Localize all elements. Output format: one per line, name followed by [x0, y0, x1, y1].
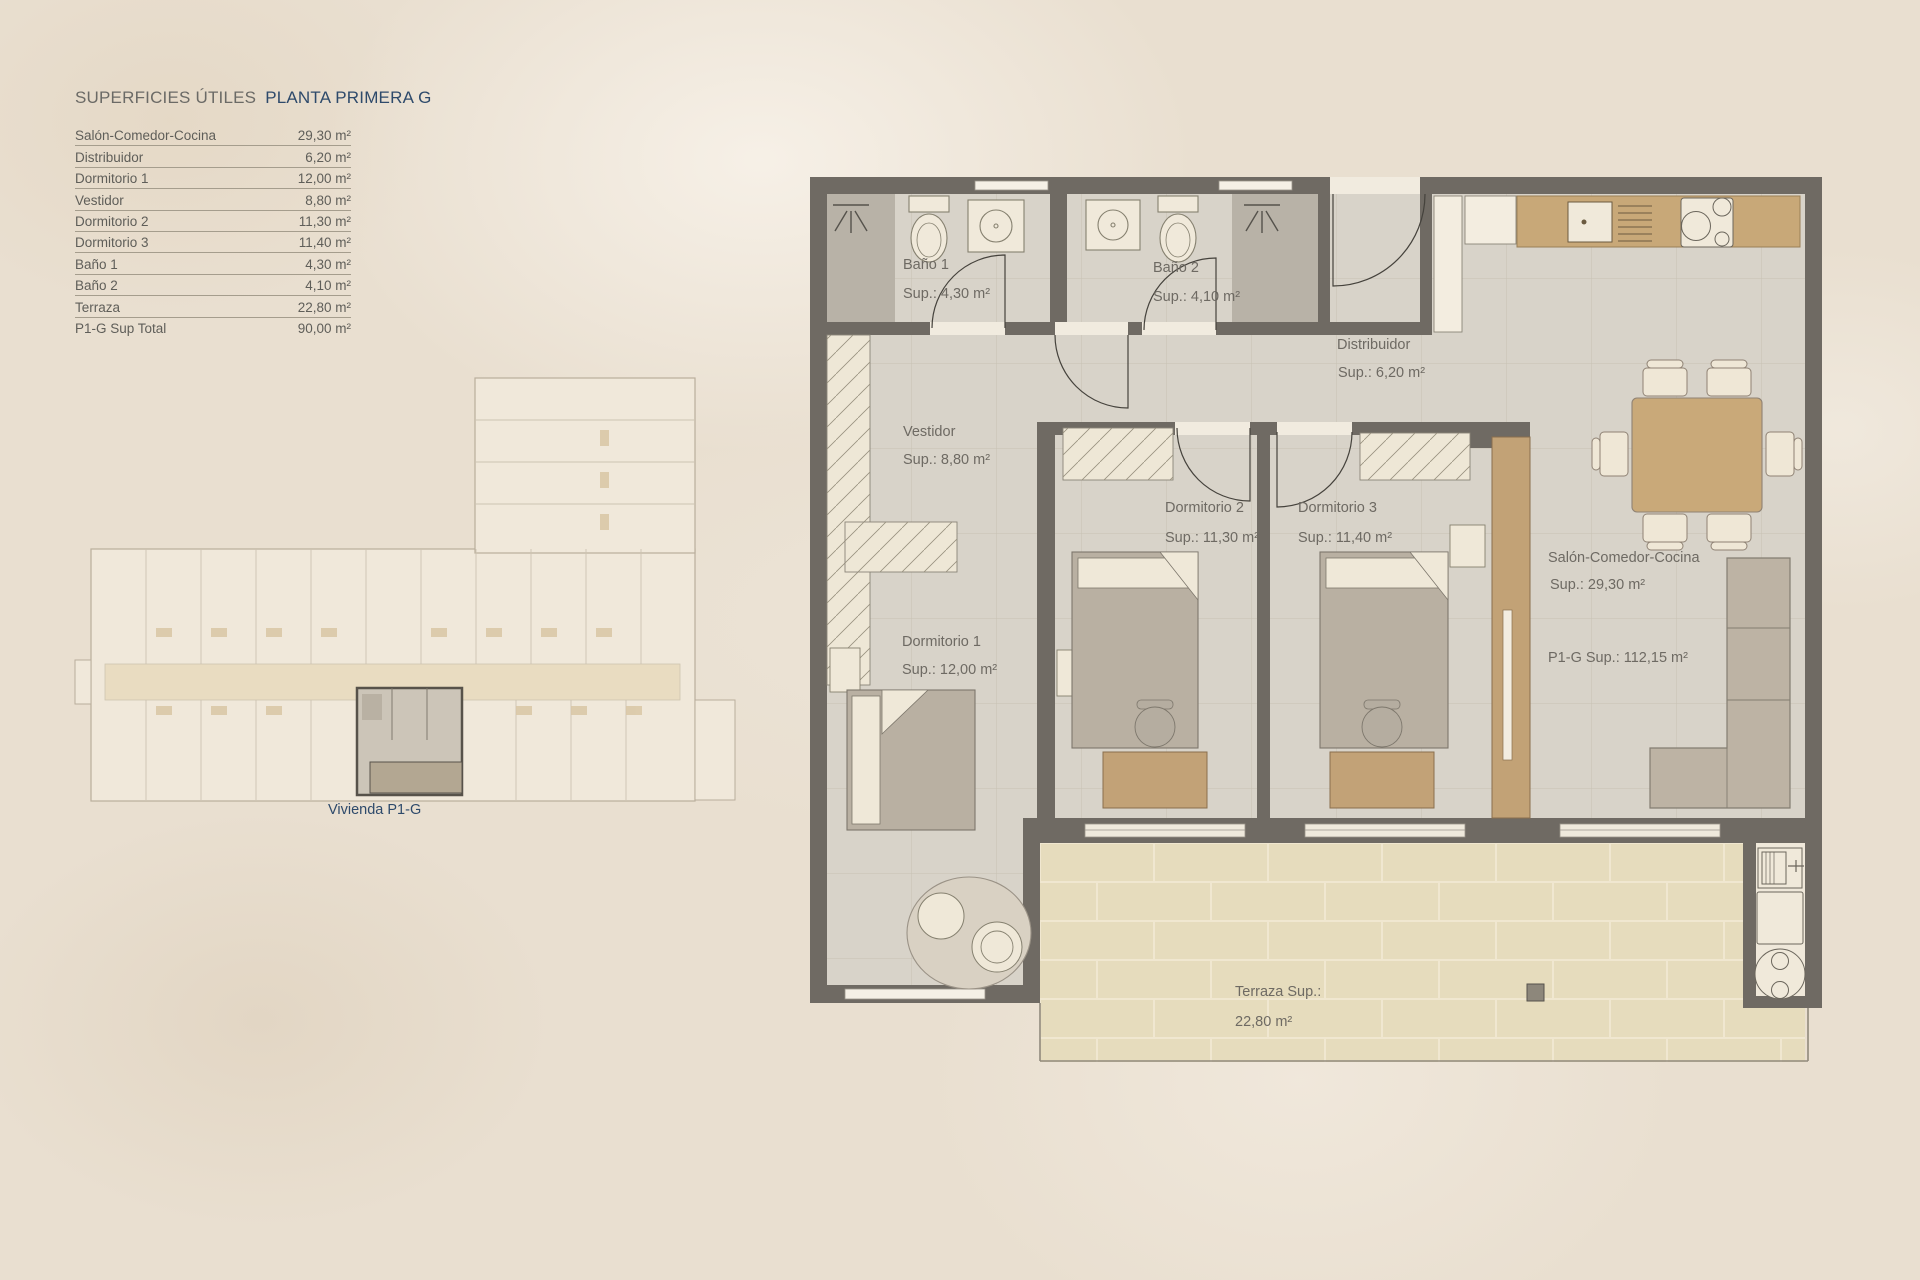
room-label-bano1: Baño 1	[903, 258, 949, 273]
wood-partition	[1492, 437, 1530, 818]
sitting-area	[907, 877, 1031, 989]
room-sup-distribuidor: Sup.: 6,20 m²	[1338, 366, 1425, 381]
row-label: Dormitorio 1	[75, 170, 149, 188]
row-label: Baño 2	[75, 277, 118, 295]
nightstand	[830, 648, 860, 692]
room-label-dorm2: Dormitorio 2	[1165, 501, 1244, 516]
armchair-icon	[918, 893, 964, 939]
overview-plan	[70, 370, 750, 810]
row-value: 8,80 m²	[305, 192, 351, 210]
legend-row: Dormitorio 112,00 m²	[75, 168, 351, 189]
room-label-dorm3: Dormitorio 3	[1298, 501, 1377, 516]
row-value: 4,10 m²	[305, 277, 351, 295]
desk-dorm3	[1330, 752, 1434, 808]
room-sup-bano1: Sup.: 4,30 m²	[903, 287, 990, 302]
row-label: Distribuidor	[75, 149, 143, 167]
row-value: 11,30 m²	[299, 213, 351, 231]
legend-row: P1-G Sup Total90,00 m²	[75, 318, 351, 338]
room-sup-vestidor: Sup.: 8,80 m²	[903, 453, 990, 468]
armchair-icon	[972, 922, 1022, 972]
entry-closet	[1434, 196, 1462, 332]
overview-building	[75, 378, 735, 801]
desk-chair-dorm2	[1135, 700, 1175, 747]
legend-row: Dormitorio 311,40 m²	[75, 232, 351, 253]
row-value: 29,30 m²	[298, 127, 351, 145]
row-value: 6,20 m²	[305, 149, 351, 167]
wardrobe-vestidor-2	[845, 522, 957, 572]
fridge-icon	[1465, 196, 1516, 244]
terrace-floor	[1040, 843, 1808, 1062]
room-label-terraza: Terraza Sup.:	[1235, 985, 1321, 1000]
row-value: 11,40 m²	[299, 234, 351, 252]
row-value: 22,80 m²	[298, 299, 351, 317]
desk-chair-dorm3	[1362, 700, 1402, 747]
room-label-vestidor: Vestidor	[903, 425, 955, 440]
legend-row: Baño 24,10 m²	[75, 275, 351, 296]
wardrobe-dorm3	[1360, 433, 1470, 480]
room-label-bano2: Baño 2	[1153, 261, 1199, 276]
room-label-total: P1-G Sup.: 112,15 m²	[1548, 651, 1688, 666]
sliding-doors-terrace	[1085, 824, 1720, 837]
wardrobe-dorm2	[1063, 428, 1173, 480]
row-label: Dormitorio 2	[75, 213, 149, 231]
kitchen-counter	[1517, 196, 1800, 247]
legend-row: Salón-Comedor-Cocina29,30 m²	[75, 125, 351, 146]
boiler-icon	[1755, 949, 1805, 999]
dining-table	[1632, 398, 1762, 512]
room-sup-dorm1: Sup.: 12,00 m²	[902, 663, 997, 678]
toilet-icon-bano1	[909, 196, 949, 262]
room-sup-terraza: 22,80 m²	[1235, 1015, 1292, 1030]
room-sup-bano2: Sup.: 4,10 m²	[1153, 290, 1240, 305]
sink-icon-bano2	[1086, 200, 1140, 250]
toilet-icon-bano2	[1158, 196, 1198, 262]
room-sup-salon: Sup.: 29,30 m²	[1550, 578, 1645, 593]
row-label: Baño 1	[75, 256, 118, 274]
sink-icon-bano1	[968, 200, 1024, 252]
row-value: 90,00 m²	[298, 320, 351, 338]
legend-table: Salón-Comedor-Cocina29,30 m² Distribuido…	[75, 125, 351, 338]
page: SUPERFICIES ÚTILESPLANTA PRIMERA G Salón…	[0, 0, 1920, 1280]
washer-icon	[1757, 892, 1803, 944]
overview-caption: Vivienda P1-G	[328, 802, 421, 818]
row-label: P1-G Sup Total	[75, 320, 166, 338]
overview-highlighted-unit	[357, 688, 462, 795]
hob-icon	[1681, 198, 1733, 247]
legend-title-left: SUPERFICIES ÚTILES	[75, 88, 256, 107]
row-label: Dormitorio 3	[75, 234, 149, 252]
utility-sink-icon	[1758, 848, 1804, 888]
room-label-dorm1: Dormitorio 1	[902, 635, 981, 650]
shower-bano2	[1232, 194, 1318, 322]
room-sup-dorm3: Sup.: 11,40 m²	[1298, 531, 1392, 546]
nightstand	[1450, 525, 1485, 567]
legend-row: Dormitorio 211,30 m²	[75, 211, 351, 232]
shower-bano1	[827, 194, 895, 322]
legend-row: Distribuidor6,20 m²	[75, 146, 351, 167]
room-label-distribuidor: Distribuidor	[1337, 338, 1410, 353]
row-label: Vestidor	[75, 192, 124, 210]
legend-title-right: PLANTA PRIMERA G	[265, 88, 431, 107]
row-value: 4,30 m²	[305, 256, 351, 274]
room-sup-dorm2: Sup.: 11,30 m²	[1165, 531, 1259, 546]
legend-row: Vestidor8,80 m²	[75, 189, 351, 210]
room-label-salon: Salón-Comedor-Cocina	[1548, 551, 1700, 566]
row-value: 12,00 m²	[298, 170, 351, 188]
legend-title: SUPERFICIES ÚTILESPLANTA PRIMERA G	[75, 88, 351, 108]
wardrobe-vestidor	[827, 335, 870, 685]
terrace-drain	[1527, 984, 1544, 1001]
legend-row: Baño 14,30 m²	[75, 253, 351, 274]
desk-dorm2	[1103, 752, 1207, 808]
bed-dorm1	[847, 690, 975, 830]
legend-panel: SUPERFICIES ÚTILESPLANTA PRIMERA G Salón…	[75, 88, 351, 338]
row-label: Salón-Comedor-Cocina	[75, 127, 216, 145]
legend-row: Terraza22,80 m²	[75, 296, 351, 317]
bed-dorm2	[1072, 552, 1198, 748]
row-label: Terraza	[75, 299, 120, 317]
floor-plan	[805, 172, 1825, 1072]
